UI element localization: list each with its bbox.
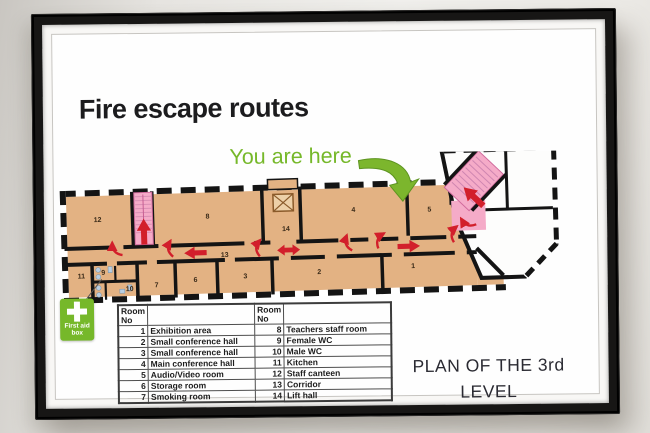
- building-group: 12 8 4 5 14 13 11 9 10 7 6 3 2: [60, 150, 558, 304]
- room-number-label: 8: [205, 213, 209, 220]
- first-aid-label: First aid box: [60, 322, 94, 337]
- legend-cell: 10: [255, 346, 284, 357]
- legend-cell: Smoking room: [148, 390, 255, 403]
- wing-wall: [506, 151, 508, 209]
- wing-wall: [485, 208, 553, 210]
- room-number-label: 9: [101, 270, 105, 277]
- legend-cell: 4: [119, 358, 149, 369]
- room-number-label: 6: [193, 277, 197, 284]
- plan-level-label: PLAN OF THE 3rd LEVEL: [381, 351, 595, 379]
- legend-cell: 9: [255, 335, 284, 346]
- room-number-label: 11: [78, 273, 86, 280]
- legend-row: 7Smoking room14Lift hall: [119, 389, 392, 403]
- room-number-label: 3: [243, 273, 247, 280]
- wall-background: Fire escape routes You are here: [0, 0, 650, 433]
- legend-header-name: [148, 304, 255, 326]
- lift-shaft: [267, 179, 297, 190]
- legend-cell: Lift hall: [285, 389, 393, 402]
- room-number-label: 1: [411, 263, 415, 270]
- room-number-label: 7: [155, 282, 159, 289]
- room-number-label: 2: [317, 269, 321, 276]
- fire-escape-poster: Fire escape routes You are here: [51, 28, 600, 400]
- room-legend-table: Room No Room No 1Exhibition area8Teacher…: [117, 301, 393, 404]
- first-aid-box-sign: First aid box: [60, 298, 94, 340]
- legend-cell: 11: [255, 357, 284, 368]
- legend-header-row: Room No Room No: [118, 302, 391, 325]
- room-number-label: 4: [351, 207, 355, 214]
- legend-header-room-no: Room No: [255, 303, 284, 324]
- legend-cell: 3: [118, 347, 148, 358]
- poster-title: Fire escape routes: [79, 92, 309, 125]
- legend-header-name: [284, 302, 392, 324]
- legend-header-room-no: Room No: [118, 305, 148, 326]
- legend-cell: 8: [255, 324, 284, 335]
- room-number-label: 12: [94, 217, 102, 224]
- first-aid-cross-icon: [67, 302, 87, 322]
- room-number-label: 13: [221, 252, 229, 259]
- legend-cell: 12: [255, 368, 284, 379]
- legend-cell: 6: [119, 380, 149, 391]
- room-number-label: 14: [282, 226, 290, 233]
- picture-frame: Fire escape routes You are here: [31, 8, 620, 420]
- legend-cell: 13: [255, 379, 284, 390]
- legend-cell: 14: [255, 390, 284, 402]
- lift-icon: [273, 194, 294, 212]
- legend-cell: 1: [118, 325, 148, 336]
- room-legend-tbody: 1Exhibition area8Teachers staff room2Sma…: [118, 323, 392, 403]
- legend-cell: 2: [118, 336, 148, 347]
- legend-cell: 7: [119, 391, 149, 403]
- room-number-label: 10: [126, 286, 134, 293]
- frame-mat: Fire escape routes You are here: [42, 19, 609, 409]
- room-number-label: 5: [427, 206, 431, 213]
- legend-cell: 5: [119, 369, 149, 380]
